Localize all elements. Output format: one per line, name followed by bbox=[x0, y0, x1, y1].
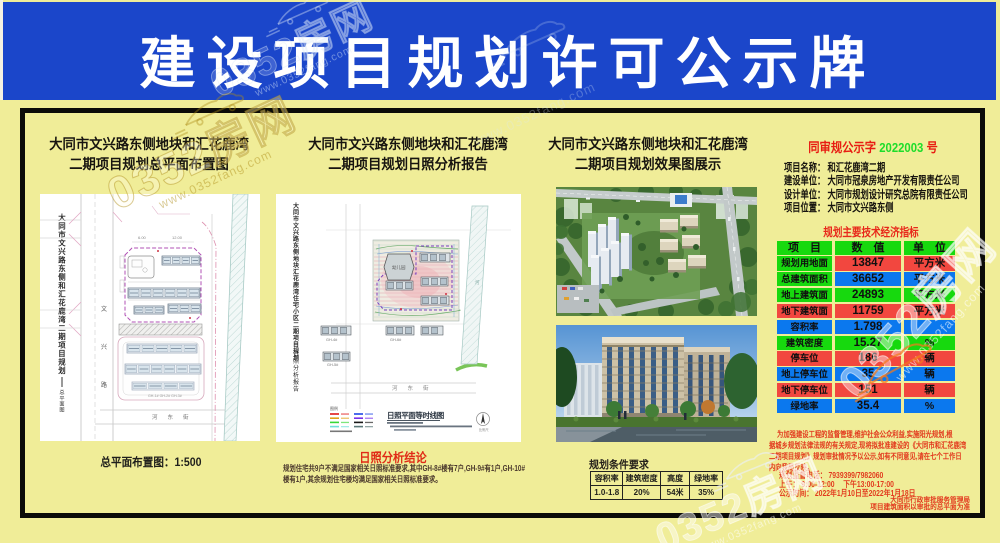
svg-text:www.0352fang.com: www.0352fang.com bbox=[470, 79, 598, 149]
svg-text:0352房网: 0352房网 bbox=[828, 220, 1000, 409]
